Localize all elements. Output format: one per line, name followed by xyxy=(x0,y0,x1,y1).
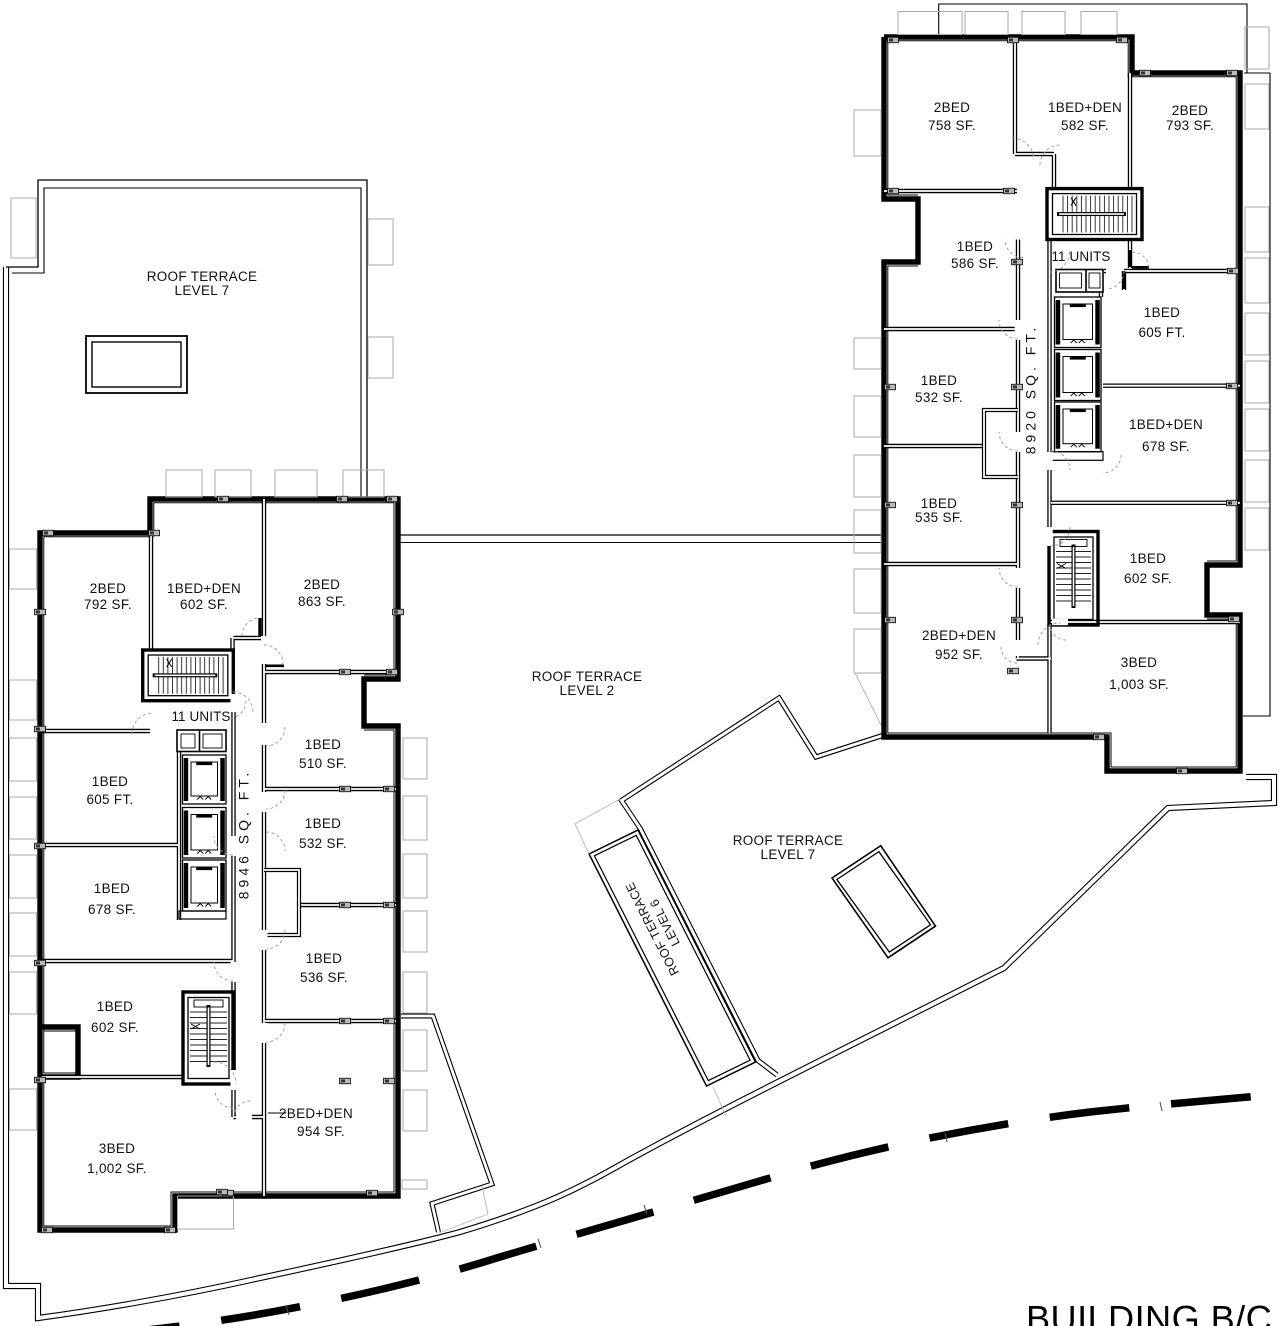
svg-text:758 SF.: 758 SF. xyxy=(928,118,976,133)
svg-text:1BED: 1BED xyxy=(921,373,957,388)
svg-text:510 SF.: 510 SF. xyxy=(299,756,347,771)
svg-text:2BED: 2BED xyxy=(934,100,970,115)
svg-text:602 SF.: 602 SF. xyxy=(91,1020,139,1035)
svg-text:1BED: 1BED xyxy=(94,881,130,896)
svg-text:1,002 SF.: 1,002 SF. xyxy=(87,1161,147,1176)
svg-text:1BED: 1BED xyxy=(957,239,993,254)
svg-text:11 UNITS: 11 UNITS xyxy=(1051,249,1110,264)
svg-text:2BED+DEN: 2BED+DEN xyxy=(922,628,996,643)
svg-text:605 FT.: 605 FT. xyxy=(86,792,133,807)
svg-text:586 SF.: 586 SF. xyxy=(951,256,999,271)
svg-text:1BED: 1BED xyxy=(97,999,133,1014)
svg-text:1BED: 1BED xyxy=(92,774,128,789)
svg-text:BUILDING B/C: BUILDING B/C xyxy=(1026,1298,1272,1326)
svg-text:2BED: 2BED xyxy=(90,581,126,596)
svg-text:1,003 SF.: 1,003 SF. xyxy=(1109,677,1169,692)
svg-text:952 SF.: 952 SF. xyxy=(935,647,983,662)
svg-text:954 SF.: 954 SF. xyxy=(297,1124,345,1139)
svg-text:678 SF.: 678 SF. xyxy=(1142,439,1190,454)
svg-text:602 SF.: 602 SF. xyxy=(180,597,228,612)
svg-text:1BED+DEN: 1BED+DEN xyxy=(1048,100,1122,115)
svg-text:ROOF TERRACE: ROOF TERRACE xyxy=(733,833,844,848)
svg-text:678 SF.: 678 SF. xyxy=(88,902,136,917)
svg-text:2BED+DEN: 2BED+DEN xyxy=(279,1106,353,1121)
svg-text:LEVEL 2: LEVEL 2 xyxy=(560,683,615,698)
svg-text:1BED: 1BED xyxy=(1144,305,1180,320)
svg-text:3BED: 3BED xyxy=(99,1141,135,1156)
svg-text:863 SF.: 863 SF. xyxy=(298,594,346,609)
svg-text:532 SF.: 532 SF. xyxy=(299,836,347,851)
svg-text:536 SF.: 536 SF. xyxy=(300,970,348,985)
svg-text:LEVEL 7: LEVEL 7 xyxy=(761,847,816,862)
svg-text:582 SF.: 582 SF. xyxy=(1061,118,1109,133)
svg-text:792 SF.: 792 SF. xyxy=(84,597,132,612)
svg-text:1BED+DEN: 1BED+DEN xyxy=(167,581,241,596)
svg-text:602 SF.: 602 SF. xyxy=(1124,571,1172,586)
svg-text:11 UNITS: 11 UNITS xyxy=(171,709,230,724)
svg-text:1BED: 1BED xyxy=(305,816,341,831)
svg-text:1BED: 1BED xyxy=(306,951,342,966)
svg-text:LEVEL 7: LEVEL 7 xyxy=(175,283,230,298)
svg-text:3BED: 3BED xyxy=(1121,655,1157,670)
svg-text:8920 SQ. FT.: 8920 SQ. FT. xyxy=(1023,324,1039,454)
svg-text:793 SF.: 793 SF. xyxy=(1166,118,1214,133)
svg-text:2BED: 2BED xyxy=(1172,103,1208,118)
svg-text:2BED: 2BED xyxy=(304,577,340,592)
svg-text:1BED: 1BED xyxy=(1130,551,1166,566)
svg-text:1BED: 1BED xyxy=(305,737,341,752)
svg-text:1BED: 1BED xyxy=(921,496,957,511)
svg-text:535 SF.: 535 SF. xyxy=(915,510,963,525)
svg-text:8946 SQ. FT.: 8946 SQ. FT. xyxy=(236,769,252,899)
svg-text:532 SF.: 532 SF. xyxy=(915,390,963,405)
svg-text:ROOF TERRACE: ROOF TERRACE xyxy=(532,669,643,684)
svg-text:ROOF TERRACE: ROOF TERRACE xyxy=(147,269,258,284)
svg-text:1BED+DEN: 1BED+DEN xyxy=(1129,417,1203,432)
svg-text:605 FT.: 605 FT. xyxy=(1138,325,1185,340)
